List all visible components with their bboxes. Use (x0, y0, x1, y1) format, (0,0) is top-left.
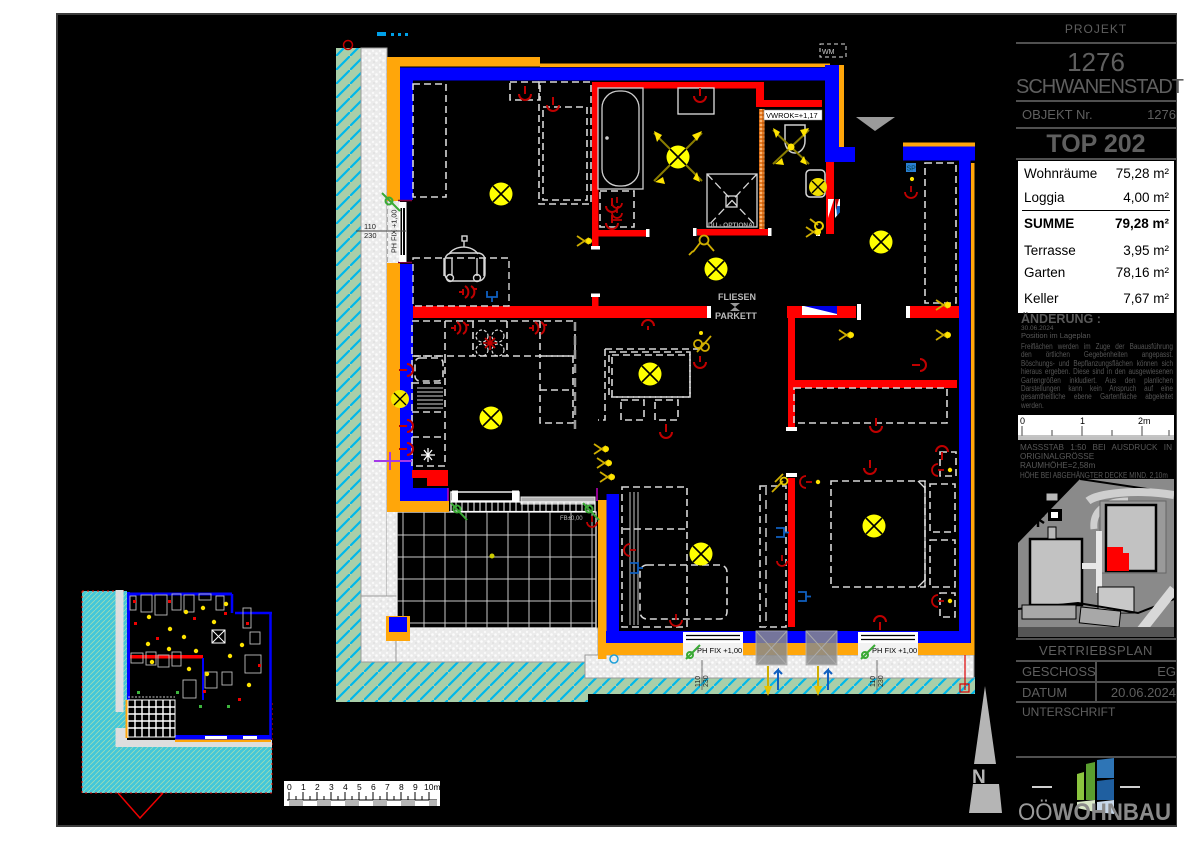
svg-text:SP: SP (907, 166, 917, 173)
svg-text:230: 230 (878, 675, 885, 687)
svg-text:8: 8 (399, 782, 404, 792)
svg-text:110: 110 (870, 676, 877, 687)
svg-text:9: 9 (413, 782, 418, 792)
svg-text:230: 230 (703, 675, 710, 687)
svg-text:4: 4 (343, 782, 348, 792)
svg-text:5: 5 (357, 782, 362, 792)
svg-text:PH FIX +1,00: PH FIX +1,00 (872, 646, 917, 655)
svg-text:7: 7 (385, 782, 390, 792)
svg-text:10m: 10m (424, 782, 441, 792)
svg-text:6: 6 (371, 782, 376, 792)
svg-text:N: N (972, 767, 986, 788)
svg-text:DU - OPTIONAL: DU - OPTIONAL (708, 222, 757, 229)
svg-text:OÖWOHNBAU: OÖWOHNBAU (1018, 799, 1171, 825)
svg-text:FLIESEN: FLIESEN (718, 292, 756, 302)
svg-text:1: 1 (301, 782, 306, 792)
svg-text:PARKETT: PARKETT (715, 311, 757, 321)
svg-text:0: 0 (287, 782, 292, 792)
svg-text:FB±0,00: FB±0,00 (560, 516, 583, 522)
svg-text:3: 3 (329, 782, 334, 792)
svg-text:2: 2 (315, 782, 320, 792)
svg-text:WM: WM (822, 49, 835, 56)
svg-text:230: 230 (364, 231, 377, 240)
svg-text:110: 110 (364, 222, 376, 231)
svg-text:110: 110 (695, 676, 702, 687)
svg-text:PH FIX +1,00: PH FIX +1,00 (697, 646, 742, 655)
svg-text:VWROK=+1,17: VWROK=+1,17 (766, 111, 818, 120)
